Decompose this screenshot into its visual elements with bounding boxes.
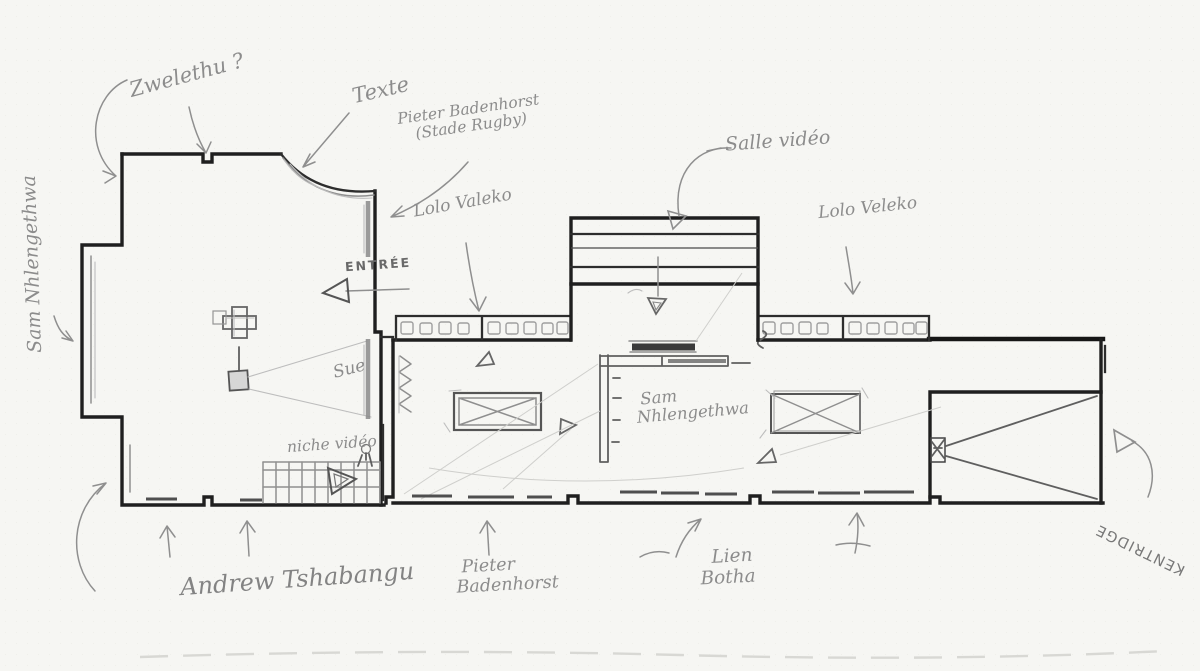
label-lien: Lien Botha — [699, 546, 756, 590]
niche-video-grid — [263, 462, 380, 503]
main-hall-walls — [381, 337, 1105, 503]
crate-2 — [760, 388, 868, 438]
label-lien-line2: Botha — [700, 566, 756, 590]
cross-pedestal — [213, 307, 256, 338]
entree-arrow — [346, 289, 409, 291]
projector-triangle-icon — [328, 468, 356, 494]
annotation-arrows — [54, 80, 1152, 591]
lien-bracket-right — [836, 543, 870, 546]
entree-arrowhead — [323, 279, 349, 302]
kentridge-curved-arrow — [1132, 441, 1152, 497]
crate-1 — [444, 390, 541, 432]
texte-arrow — [303, 113, 349, 167]
hanging-zigzag — [399, 356, 411, 413]
salle-video-arrow — [678, 148, 731, 216]
salle-video-room — [571, 218, 758, 340]
zwelethu-arrow — [189, 107, 211, 153]
projection-screen — [364, 201, 368, 419]
bottom-left-swoosh-arrow — [77, 483, 106, 591]
kentridge-room — [930, 392, 1101, 499]
andrew-arrow-1 — [160, 526, 175, 557]
artwork-dashes — [412, 492, 914, 497]
projector-icon — [931, 438, 945, 462]
lolo-left-arrow — [466, 243, 486, 311]
viewing-triangle-icons — [477, 298, 776, 463]
sam-left-arrow — [54, 316, 73, 341]
sketch-linework — [0, 0, 1200, 671]
salle-video-arrowhead — [668, 211, 686, 229]
sight-lines — [404, 257, 941, 499]
lien-arrow-1 — [676, 519, 701, 557]
lolo-right-arrow — [845, 247, 860, 294]
paper-edge — [140, 651, 1165, 658]
video-bench — [629, 341, 697, 352]
andrew-arrow-2 — [240, 521, 255, 556]
floorplan-sketch: Zwelethu ? Texte Pieter Badenhorst (Stad… — [0, 0, 1200, 671]
lien-bracket-left — [640, 552, 669, 557]
label-pieter-bottom: Pieter Badenhorst — [455, 553, 559, 597]
lien-arrow-2 — [849, 513, 864, 553]
window-band — [396, 316, 929, 348]
kentridge-arrowhead — [1114, 430, 1135, 452]
pieter-bottom-arrow — [480, 521, 495, 555]
